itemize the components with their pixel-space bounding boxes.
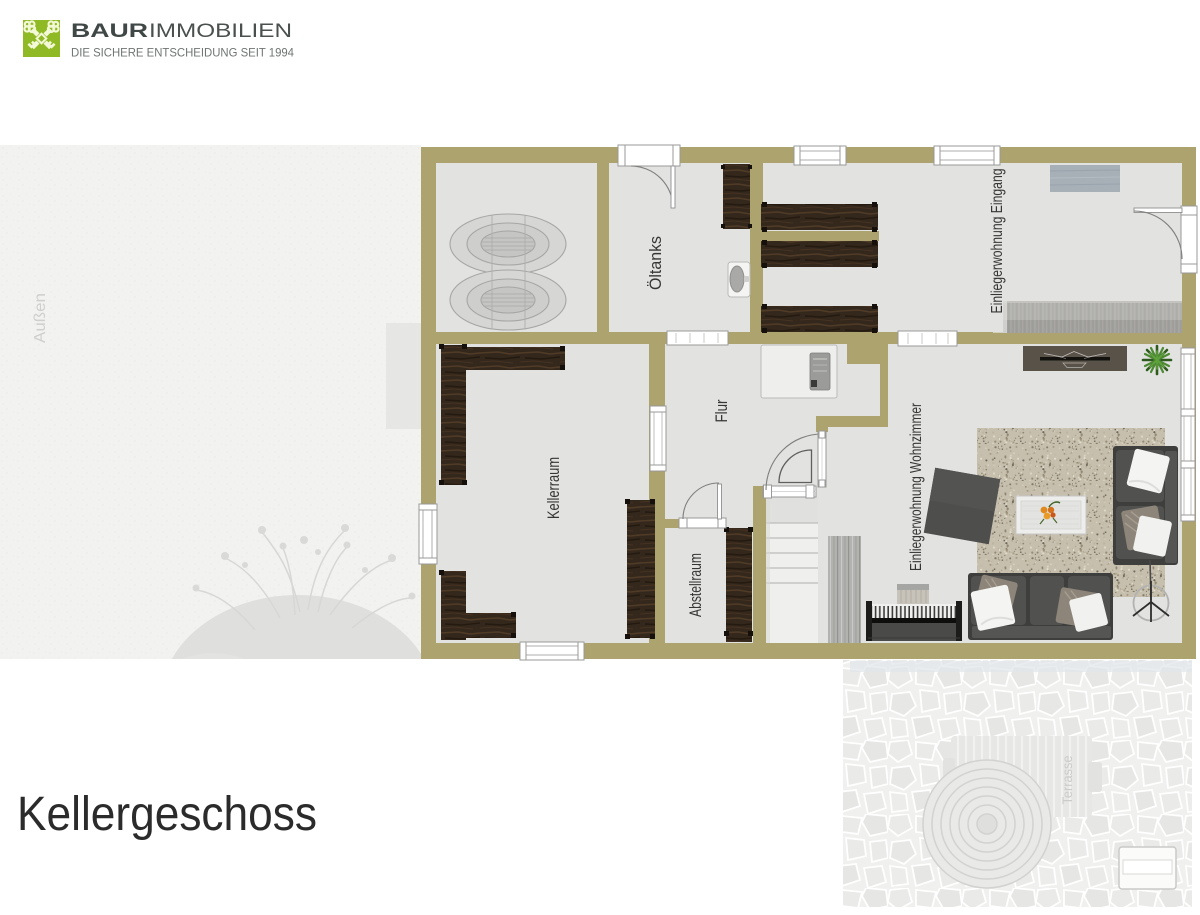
svg-text:Kellerraum: Kellerraum <box>544 457 563 519</box>
svg-text:Öltanks: Öltanks <box>646 236 665 290</box>
svg-text:Kellergeschoss: Kellergeschoss <box>17 788 317 841</box>
svg-text:Flur: Flur <box>712 399 731 422</box>
svg-text:Außen: Außen <box>32 293 49 343</box>
svg-text:Terrasse: Terrasse <box>1059 755 1075 804</box>
svg-text:Abstellraum: Abstellraum <box>687 553 705 617</box>
svg-text:DIE SICHERE ENTSCHEIDUNG SEIT: DIE SICHERE ENTSCHEIDUNG SEIT 1994 <box>71 47 294 60</box>
svg-text:BAUR: BAUR <box>71 21 148 42</box>
svg-text:IMMOBILIEN: IMMOBILIEN <box>149 21 292 42</box>
svg-text:Einliegerwohnung Wohnzimmer: Einliegerwohnung Wohnzimmer <box>908 402 925 571</box>
svg-text:Einliegerwohnung Eingang: Einliegerwohnung Eingang <box>989 169 1006 314</box>
